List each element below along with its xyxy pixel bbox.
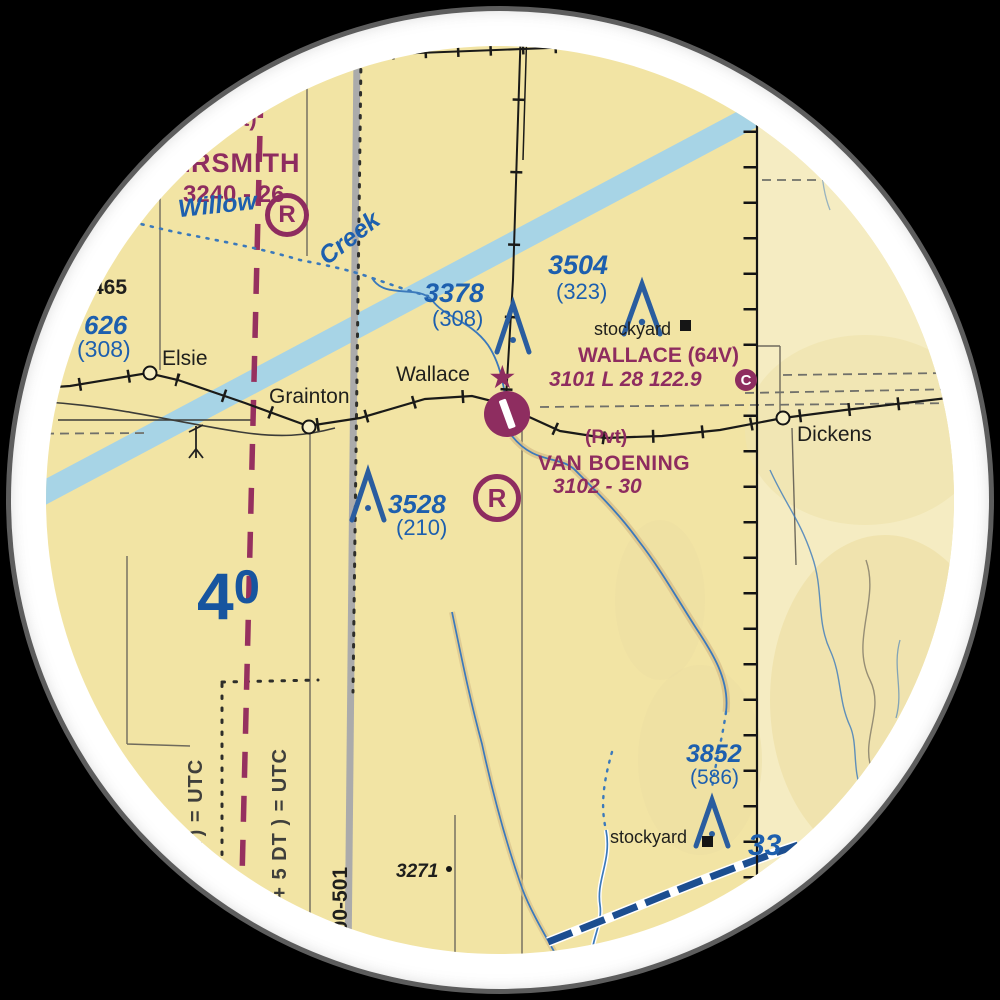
timezone-utc-east-label: ( + 5 DT ) = UTC xyxy=(270,748,290,913)
obstruction-agl: (323) xyxy=(556,281,607,303)
obstruction-elevation: 3852 xyxy=(686,742,742,767)
town-label-dickens: Dickens xyxy=(797,424,872,445)
obstruction-agl: (586) xyxy=(690,767,739,788)
town-circle-grainton xyxy=(303,421,316,434)
sectional-chart-sticker: t) ERSMITH 3240 - 26 d Willow Creek R R … xyxy=(0,0,1000,1000)
latitude-digit: 0 xyxy=(234,560,260,613)
obstruction-elevation: 3504 xyxy=(548,252,608,279)
obstruction-agl: (308) xyxy=(77,338,131,361)
private-airport-r-icon: R xyxy=(265,193,309,237)
spot-elevation-dot xyxy=(446,866,452,872)
obstruction-elevation: 3528 xyxy=(388,491,446,517)
stockyard-label: stockyard xyxy=(610,828,687,846)
van-boening-name: VAN BOENING xyxy=(538,453,690,474)
stockyard-square-icon xyxy=(680,320,691,331)
spot-elevation-label: 3271 xyxy=(396,862,438,881)
map-area: t) ERSMITH 3240 - 26 d Willow Creek R R … xyxy=(0,0,1000,1000)
town-label-wallace: Wallace xyxy=(396,364,470,385)
latitude-40-label: 40 xyxy=(197,563,260,629)
pvt-label: (Pvt) xyxy=(585,428,627,447)
wallace-airport-name: WALLACE (64V) xyxy=(578,345,739,366)
r-letter: R xyxy=(278,201,295,229)
private-airport-r-icon: R xyxy=(473,474,521,522)
wallace-airport-icon xyxy=(484,391,530,437)
latitude-digit: 4 xyxy=(197,559,234,633)
wallace-airport-data: 3101 L 28 122.9 xyxy=(549,369,702,390)
terrain-patch xyxy=(615,520,705,680)
r-letter: R xyxy=(488,483,507,514)
longitude-33-label: 33 xyxy=(748,831,781,861)
obstruction-elevation: 3378 xyxy=(424,280,484,307)
obstruction-agl: (210) xyxy=(396,517,447,539)
town-circle-elsie xyxy=(144,367,157,380)
town-label-elsie: Elsie xyxy=(162,348,208,369)
obstruction-agl: (308) xyxy=(432,308,483,330)
obstruction-elevation: 626 xyxy=(84,312,127,338)
town-circle-dickens xyxy=(777,412,790,425)
van-boening-data: 3102 - 30 xyxy=(553,476,642,497)
stockyard-square-icon xyxy=(702,836,713,847)
ctaf-letter: C xyxy=(741,372,752,389)
beacon-star-icon: ★ xyxy=(488,358,517,396)
stockyard-label: stockyard xyxy=(594,320,671,338)
town-label-grainton: Grainton xyxy=(269,386,350,407)
